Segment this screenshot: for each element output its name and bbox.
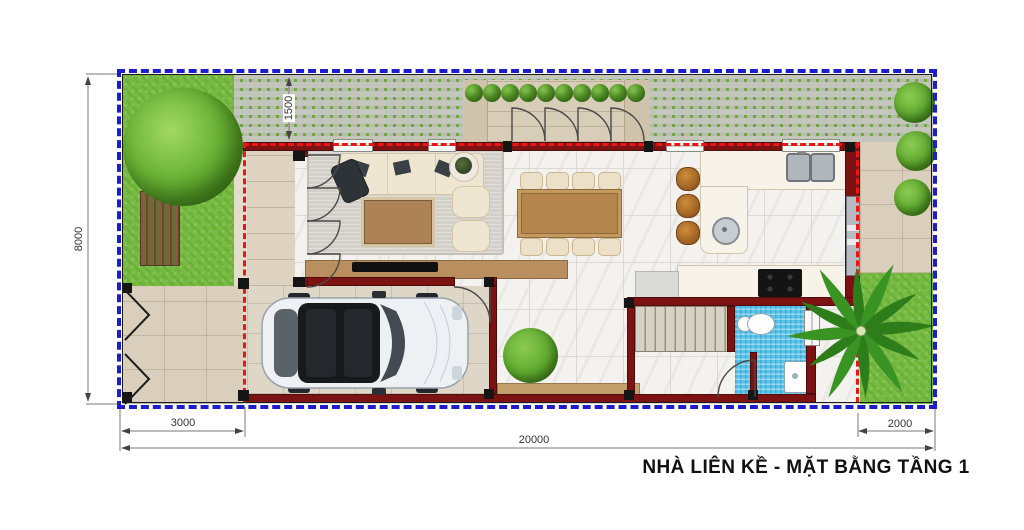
dim-plot-depth: 8000 [73,227,85,251]
dimension-lines [86,74,935,451]
dim-walkway-depth: 1500 [283,94,295,122]
plan-title: NHÀ LIÊN KỀ - MẶT BẰNG TẦNG 1 [642,457,969,479]
palm-tree [787,262,935,399]
car [262,291,468,395]
dim-total-length: 20000 [519,434,550,446]
gate-symbols [125,290,149,404]
dim-front-yard: 3000 [171,417,195,429]
floor-plan-canvas: 8000 1500 3000 2000 20000 NHÀ LIÊN KỀ - … [0,0,1024,530]
dim-back-yard: 2000 [888,418,912,430]
plan-linework [0,0,1024,530]
